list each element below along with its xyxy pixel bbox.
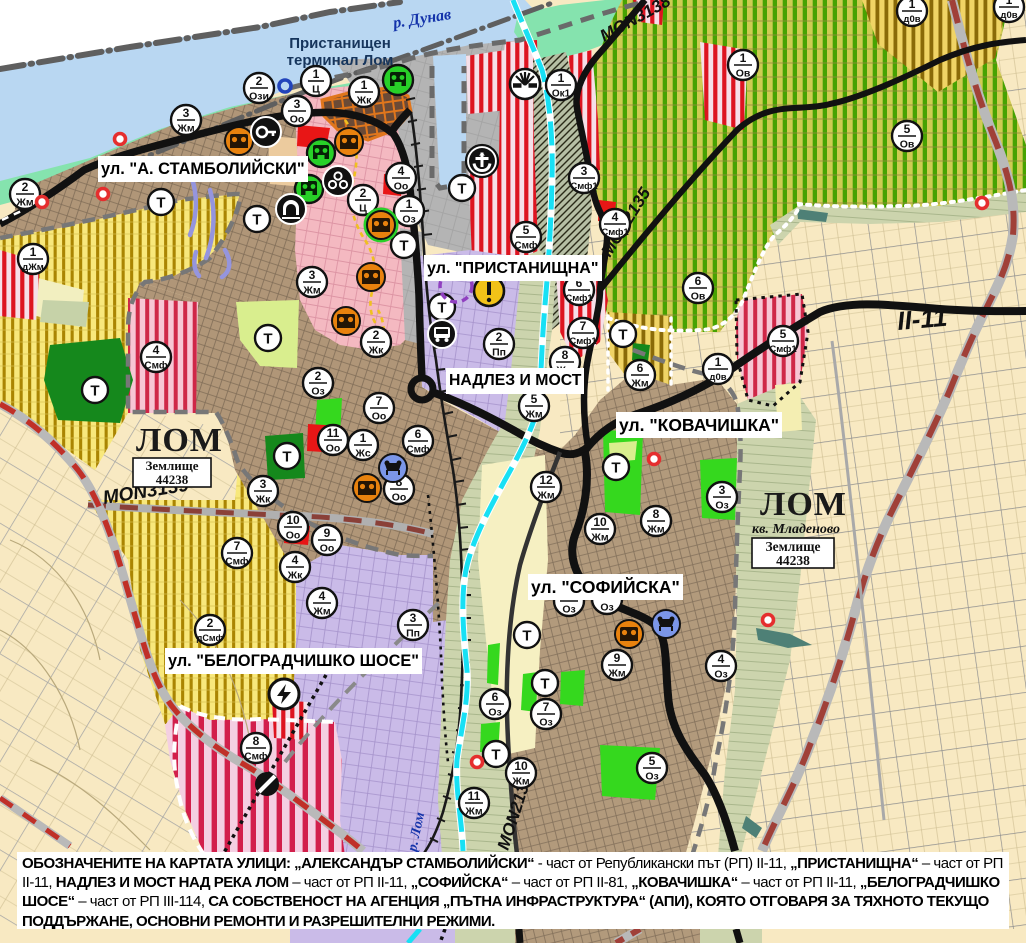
svg-text:Жк: Жк (368, 345, 384, 357)
svg-text:1: 1 (740, 51, 747, 65)
svg-text:Жк: Жк (287, 570, 303, 582)
svg-text:5: 5 (531, 392, 538, 406)
svg-text:Жм: Жм (464, 806, 482, 818)
svg-text:Пп: Пп (406, 628, 420, 640)
svg-text:2: 2 (256, 74, 263, 88)
svg-text:Т: Т (522, 628, 531, 645)
svg-text:Оз: Оз (645, 771, 658, 783)
svg-text:Жм: Жм (15, 197, 33, 209)
svg-text:Оз: Оз (402, 214, 415, 226)
svg-text:дСмф: дСмф (197, 633, 224, 643)
svg-text:4: 4 (319, 589, 326, 603)
svg-text:7: 7 (234, 539, 241, 553)
svg-text:44238: 44238 (776, 553, 810, 568)
svg-text:Т: Т (399, 238, 408, 255)
svg-text:Ц: Ц (359, 203, 367, 215)
svg-text:Оз: Оз (488, 707, 501, 719)
svg-text:8: 8 (653, 507, 660, 521)
svg-text:Землище: Землище (765, 539, 820, 554)
svg-text:2: 2 (373, 328, 380, 342)
svg-text:5: 5 (649, 754, 656, 768)
svg-text:4: 4 (398, 164, 405, 178)
svg-text:кв. Младеново: кв. Младеново (752, 522, 840, 537)
svg-text:Ов: Ов (900, 139, 915, 151)
svg-text:Оо: Оо (326, 443, 341, 455)
svg-text:Смф: Смф (144, 360, 167, 372)
svg-text:Ов: Ов (691, 291, 706, 303)
svg-text:терминал Лом: терминал Лом (287, 52, 394, 69)
svg-text:8: 8 (562, 348, 569, 362)
svg-text:4: 4 (292, 553, 299, 567)
svg-text:Т: Т (282, 449, 291, 466)
svg-text:Жм: Жм (511, 776, 529, 788)
svg-text:1: 1 (360, 431, 367, 445)
svg-text:1: 1 (909, 0, 916, 11)
svg-text:7: 7 (580, 319, 587, 333)
svg-text:6: 6 (695, 274, 702, 288)
svg-text:11: 11 (468, 789, 481, 803)
svg-text:Пристанищен: Пристанищен (289, 35, 391, 52)
svg-text:Т: Т (252, 212, 261, 229)
svg-text:Жм: Жм (524, 409, 542, 421)
svg-text:Жм: Жм (312, 606, 330, 618)
svg-text:дЖм: дЖм (22, 262, 44, 273)
svg-text:Смф: Смф (514, 240, 537, 252)
svg-text:2: 2 (22, 180, 29, 194)
svg-text:7: 7 (543, 700, 550, 714)
svg-text:11: 11 (327, 426, 340, 440)
svg-text:3: 3 (294, 97, 301, 111)
svg-text:Смф1: Смф1 (569, 336, 597, 347)
svg-text:1: 1 (313, 67, 320, 81)
svg-text:7: 7 (376, 394, 383, 408)
svg-text:Оз: Оз (562, 604, 575, 616)
svg-text:Жк: Жк (356, 95, 372, 107)
svg-text:Т: Т (540, 676, 549, 693)
svg-text:Жм: Жм (176, 123, 194, 135)
svg-text:3: 3 (410, 611, 417, 625)
svg-text:д0в: д0в (709, 372, 726, 383)
svg-text:Т: Т (156, 195, 165, 212)
svg-text:ЛОМ: ЛОМ (760, 486, 847, 523)
svg-text:Т: Т (90, 383, 99, 400)
svg-text:Т: Т (618, 327, 627, 344)
svg-text:Т: Т (263, 331, 272, 348)
svg-text:Жм: Жм (630, 378, 648, 390)
svg-text:Т: Т (611, 460, 620, 477)
svg-text:5: 5 (904, 122, 911, 136)
svg-text:Жс: Жс (354, 448, 370, 460)
svg-text:II-11: II-11 (896, 302, 949, 336)
svg-text:ЛОМ: ЛОМ (136, 422, 223, 459)
svg-text:д0в: д0в (1000, 10, 1017, 21)
svg-text:Оо: Оо (392, 492, 407, 504)
svg-text:4: 4 (153, 343, 160, 357)
svg-text:Оз: Оз (600, 602, 613, 614)
svg-text:Смф1: Смф1 (601, 227, 629, 238)
svg-text:Жм: Жм (607, 668, 625, 680)
svg-text:Оз: Оз (311, 386, 324, 398)
svg-text:Жм: Жм (536, 490, 554, 502)
svg-text:3: 3 (260, 477, 267, 491)
svg-text:Ов: Ов (736, 68, 751, 80)
svg-text:Т: Т (437, 300, 446, 317)
svg-text:Землище: Землище (145, 458, 198, 473)
svg-text:Т: Т (491, 747, 500, 764)
svg-text:2: 2 (496, 330, 503, 344)
svg-text:5: 5 (780, 327, 787, 341)
svg-text:Жм: Жм (646, 524, 664, 536)
svg-text:1: 1 (715, 355, 722, 369)
svg-text:Жк: Жк (255, 494, 271, 506)
svg-text:10: 10 (286, 513, 300, 527)
svg-text:Смф1: Смф1 (570, 181, 598, 192)
svg-text:44238: 44238 (156, 472, 189, 487)
svg-text:Т: Т (457, 181, 466, 198)
svg-text:Оо: Оо (286, 530, 301, 542)
svg-text:1: 1 (406, 197, 413, 211)
svg-text:1: 1 (1006, 0, 1013, 7)
svg-text:1: 1 (30, 245, 37, 259)
svg-text:д0в: д0в (903, 14, 920, 25)
svg-text:Смф1: Смф1 (769, 344, 797, 355)
svg-text:Пп: Пп (492, 347, 506, 359)
svg-text:9: 9 (614, 651, 621, 665)
svg-text:1: 1 (558, 71, 565, 85)
svg-text:8: 8 (253, 734, 260, 748)
svg-text:Смф: Смф (406, 444, 429, 456)
svg-text:Оо: Оо (290, 114, 305, 126)
svg-text:Оз: Оз (539, 717, 552, 729)
svg-text:9: 9 (324, 526, 331, 540)
svg-text:Жм: Жм (302, 285, 320, 297)
svg-text:10: 10 (514, 759, 528, 773)
svg-text:Оз: Оз (714, 669, 727, 681)
svg-text:2: 2 (315, 369, 322, 383)
svg-text:3: 3 (581, 164, 588, 178)
svg-text:12: 12 (539, 473, 553, 487)
svg-text:Оо: Оо (372, 411, 387, 423)
svg-text:1: 1 (361, 78, 368, 92)
svg-text:5: 5 (523, 223, 530, 237)
svg-text:Смф: Смф (225, 556, 248, 568)
svg-text:Оо: Оо (320, 543, 335, 555)
svg-text:6: 6 (637, 361, 644, 375)
svg-text:Жм: Жм (590, 532, 608, 544)
svg-text:Смф: Смф (244, 751, 267, 763)
svg-text:3: 3 (719, 483, 726, 497)
svg-text:4: 4 (718, 652, 725, 666)
svg-text:Ози: Ози (249, 91, 269, 103)
svg-text:Оз: Оз (715, 500, 728, 512)
svg-text:Оо: Оо (394, 181, 409, 193)
svg-text:Смф1: Смф1 (565, 293, 593, 304)
svg-text:3: 3 (183, 106, 190, 120)
svg-text:Ц: Ц (312, 84, 320, 96)
svg-text:Ок1: Ок1 (552, 89, 571, 100)
svg-text:6: 6 (415, 427, 422, 441)
svg-text:10: 10 (593, 515, 607, 529)
svg-text:6: 6 (492, 690, 499, 704)
svg-text:3: 3 (309, 268, 316, 282)
svg-text:2: 2 (207, 616, 214, 630)
svg-text:4: 4 (612, 210, 619, 224)
svg-text:2: 2 (360, 186, 367, 200)
